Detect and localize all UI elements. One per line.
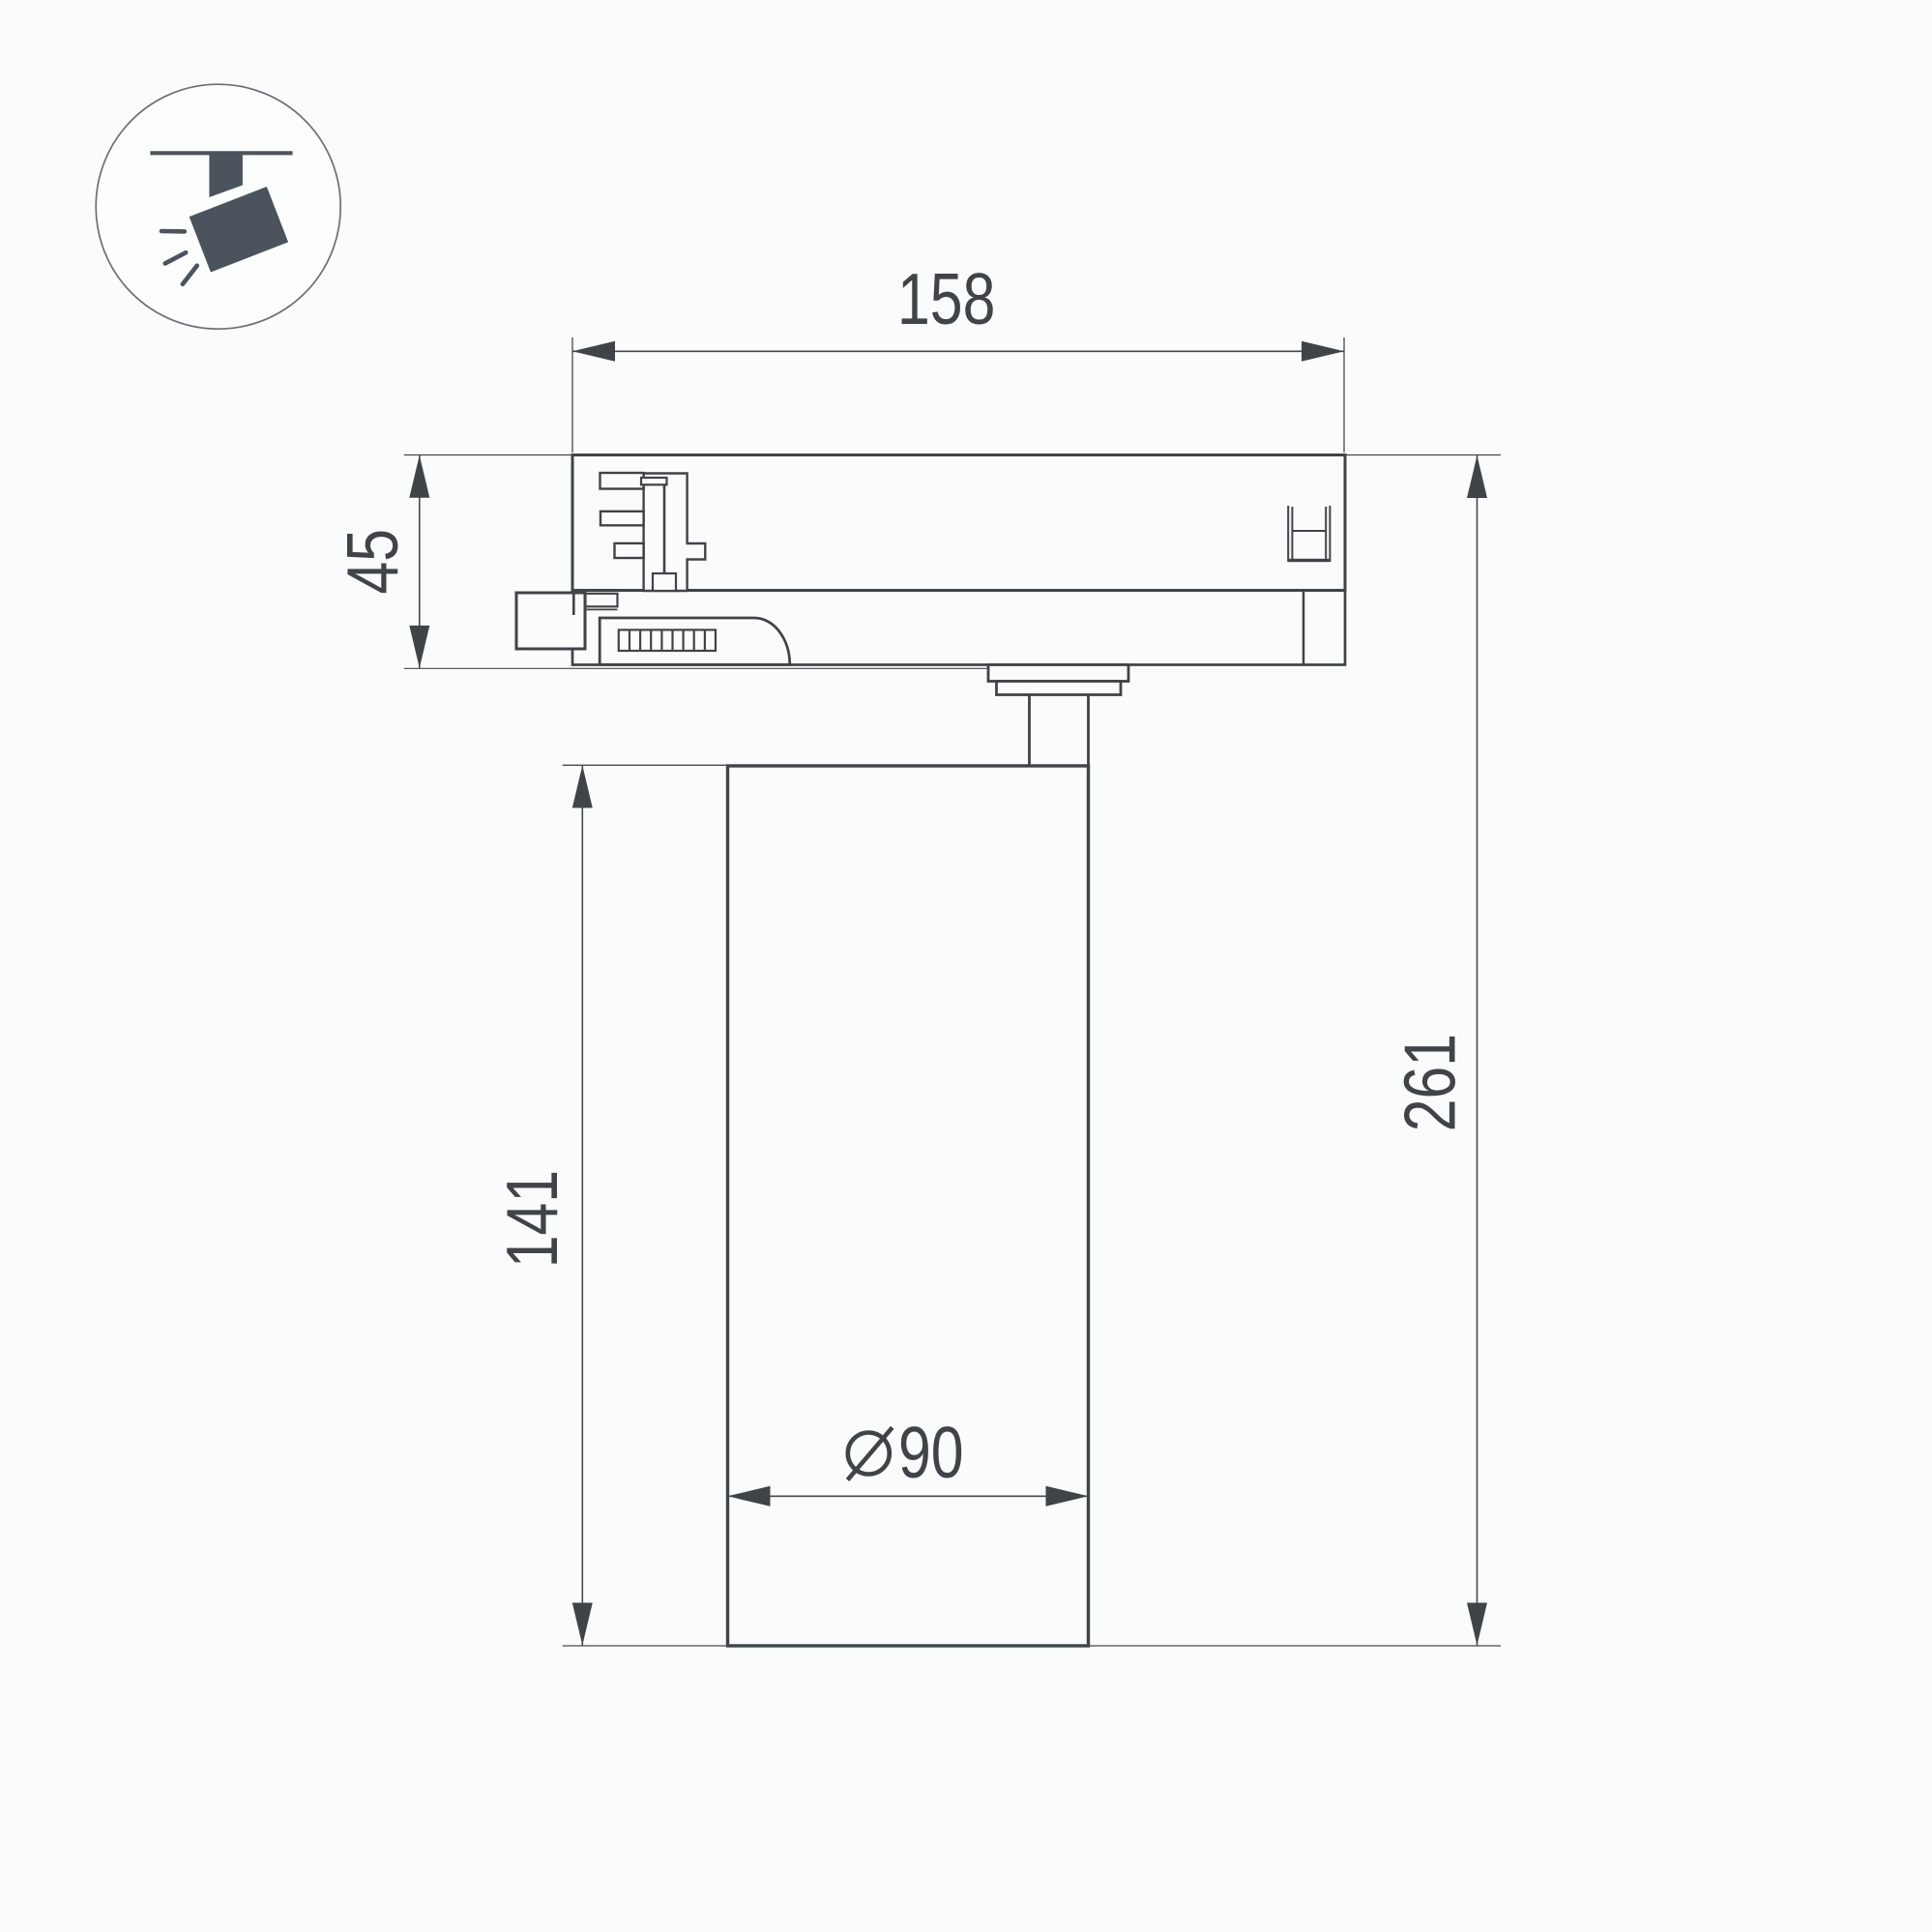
svg-text:141: 141 [492,1170,573,1268]
svg-text:45: 45 [333,529,414,595]
svg-text:261: 261 [1390,1034,1472,1131]
svg-text:158: 158 [897,259,995,340]
svg-text:90: 90 [898,1413,964,1494]
